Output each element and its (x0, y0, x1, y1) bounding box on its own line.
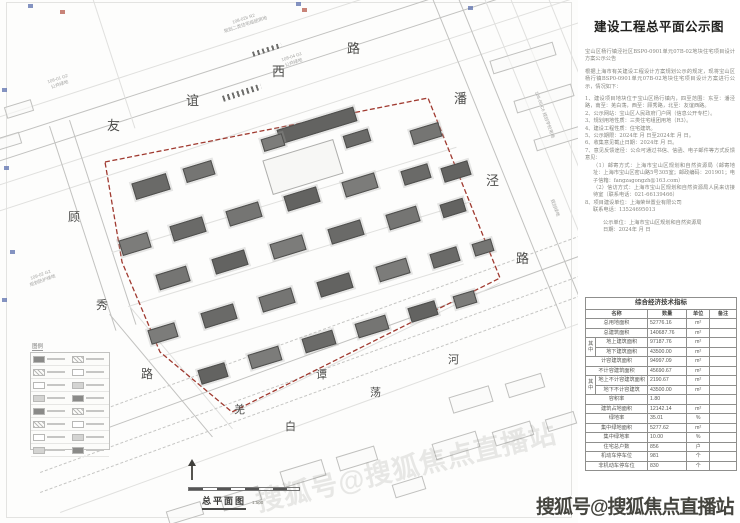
indicator-name: 总建筑面积 (586, 328, 648, 338)
legend-cell (70, 356, 109, 363)
legend-symbol (33, 356, 45, 363)
road-name-char: 谊 (186, 90, 199, 109)
group-cell: 其中 (586, 338, 596, 357)
indicator-name: 总用地面积 (586, 319, 648, 329)
notice-paragraph: 4、建设工程性质：住宅建筑。 (585, 126, 735, 133)
indicator-unit: 户 (687, 442, 710, 452)
legend-symbol (72, 434, 84, 441)
notice-paragraph: 8、项目建设单位：上海荣世置业有限公司 (585, 200, 735, 207)
legend-box (30, 352, 110, 450)
legend-symbol (33, 408, 45, 415)
legend-symbol (33, 434, 45, 441)
legend-cell (70, 382, 109, 389)
indicator-value: 1.80 (648, 395, 687, 405)
table-row: 非机动车停车位830个 (586, 461, 737, 471)
watermark: 搜狐号@搜狐焦点直播站 (536, 492, 734, 519)
indicator-unit: m² (687, 357, 710, 367)
indicator-name: 建筑占地面积 (586, 404, 648, 414)
indicator-note (710, 404, 737, 414)
road-name-char: 河 (448, 351, 459, 367)
indicator-name: 集中绿地面积 (586, 423, 648, 433)
indicator-name: 住宅总户数 (586, 442, 648, 452)
legend-text-bar (47, 397, 65, 399)
legend-cell (70, 434, 109, 441)
notice-paragraph: 日期：2024年 月 日 (585, 227, 735, 234)
indicator-name: 容积率 (586, 395, 648, 405)
annotation-stamp (2, 88, 7, 92)
indicator-unit (687, 395, 710, 405)
notice-paragraph: 根据上海市有关建设工程设计方案规划公示的规定，现将宝山区杨行镇BSP0-0901… (585, 69, 735, 91)
legend-symbol (72, 447, 84, 454)
legend-symbol (72, 421, 84, 428)
legend-cell (70, 369, 109, 376)
notice-paragraph: 1、建设项目地块位于宝山区杨行镇内，四至范围：东至：潘泾路，南至：羌白荡，西至：… (585, 96, 735, 111)
legend-text-bar (47, 358, 65, 360)
legend-cell (70, 408, 109, 415)
legend-text-bar (47, 436, 65, 438)
notice-paragraph: （2）信访方式：上海市宝山区规划和自然资源局人民来访接待室（联系电话：021-6… (585, 185, 735, 200)
legend-cell (31, 447, 70, 454)
table-row: 机动车停车位981个 (586, 452, 737, 462)
indicator-value: 5277.62 (648, 423, 687, 433)
notice-paragraph: 联系电话：13524695013 (585, 207, 735, 214)
indicator-unit: % (687, 433, 710, 443)
legend-text-bar (47, 410, 65, 412)
indicator-note (710, 452, 737, 462)
legend-cell (31, 369, 70, 376)
annotation-stamp (296, 2, 301, 6)
indicator-note (710, 319, 737, 329)
indicator-unit: m² (687, 328, 710, 338)
indicator-table: 综合经济技术指标名称数量单位备注总用地面积52776.16m²总建筑面积1406… (585, 297, 737, 471)
road-name-char: 路 (347, 38, 360, 57)
indicator-note (710, 395, 737, 405)
road-name-char: 秀 (96, 296, 108, 313)
legend-row (31, 379, 109, 392)
legend-symbol (72, 356, 84, 363)
indicator-value: 2190.67 (648, 376, 687, 386)
notice-paragraphs: 宝山区杨行镇泾社区BSP0-0901单元07B-02地块住宅项目设计方案公示公告… (585, 44, 735, 234)
road-name-char: 泾 (486, 170, 499, 189)
table-row: 其中地上不计容建筑面积2190.67m² (586, 376, 737, 386)
north-arrow-icon (191, 462, 193, 480)
legend-row (31, 353, 109, 366)
indicator-unit: m² (687, 385, 710, 395)
legend-text-bar (86, 423, 104, 425)
indicator-unit: m² (687, 366, 710, 376)
legend-text-bar (86, 358, 104, 360)
road-name-char: 荡 (370, 384, 381, 400)
indicator-value: 10.00 (648, 433, 687, 443)
indicator-note (710, 461, 737, 471)
indicator-note (710, 366, 737, 376)
indicator-value: 35.01 (648, 414, 687, 424)
legend-cell (70, 447, 109, 454)
indicator-value: 45690.67 (648, 366, 687, 376)
indicator-note (710, 385, 737, 395)
indicator-name: 不计容建筑面积 (586, 366, 648, 376)
legend-row (31, 418, 109, 431)
indicator-note (710, 347, 737, 357)
annotation-stamp (2, 298, 7, 302)
annotation-stamp (60, 10, 65, 14)
indicator-note (710, 442, 737, 452)
plan-title: 总平面图 (202, 494, 246, 510)
legend-symbol (33, 447, 45, 454)
legend-cell (70, 421, 109, 428)
road-name-char: 谭 (316, 366, 327, 382)
indicator-name: 非机动车停车位 (586, 461, 648, 471)
table-row: 总建筑面积140687.76m² (586, 328, 737, 338)
table-row: 地下不计容建筑43500.00m² (586, 385, 737, 395)
notice-paragraph: 7、意见反馈途径：公众可通过书信、信函、电子邮件等方式反馈意见： (585, 148, 735, 163)
road-name-char: 潘 (454, 88, 467, 107)
notice-paragraph: 3、规划用地性质：三类住宅组团用地（R3）。 (585, 118, 735, 125)
annotation-stamp (302, 8, 307, 12)
indicator-value: 12142.14 (648, 404, 687, 414)
table-row: 容积率1.80 (586, 395, 737, 405)
table-row: 不计容建筑面积45690.67m² (586, 366, 737, 376)
indicator-unit: m² (687, 347, 710, 357)
indicator-name: 计容建筑面积 (586, 357, 648, 367)
indicator-value: 97187.76 (648, 338, 687, 348)
indicator-name: 绿地率 (586, 414, 648, 424)
table-row: 计容建筑面积94997.09m² (586, 357, 737, 367)
annotation-stamp (10, 250, 15, 254)
table-header: 名称 (586, 309, 648, 319)
legend-symbol (72, 395, 84, 402)
notice-paragraph: 公示单位：上海市宝山区规划和自然资源局 (585, 220, 735, 227)
indicator-value: 830 (648, 461, 687, 471)
indicator-unit: m² (687, 376, 710, 386)
indicator-value: 856 (648, 442, 687, 452)
legend-cell (31, 421, 70, 428)
table-row: 集中绿地面积5277.62m² (586, 423, 737, 433)
legend-row (31, 392, 109, 405)
road-name-char: 羌 (234, 401, 245, 417)
table-row: 总用地面积52776.16m² (586, 319, 737, 329)
indicator-note (710, 328, 737, 338)
legend-symbol (72, 408, 84, 415)
legend-symbol (72, 369, 84, 376)
legend-row (31, 444, 109, 457)
road-name-char: 顾 (68, 208, 80, 225)
table-header: 单位 (687, 309, 710, 319)
indicator-note (710, 357, 737, 367)
indicator-table-wrap: 综合经济技术指标名称数量单位备注总用地面积52776.16m²总建筑面积1406… (585, 297, 737, 471)
annotation-stamp (28, 4, 33, 8)
legend-text-bar (47, 371, 65, 373)
legend-text-bar (86, 397, 104, 399)
legend-row (31, 366, 109, 379)
road-name-char: 路 (516, 248, 529, 267)
page: { "watermark": { "text": "搜狐号@搜狐焦点直播站", … (0, 0, 740, 523)
indicator-value: 52776.16 (648, 319, 687, 329)
table-row: 住宅总户数856户 (586, 442, 737, 452)
legend-cell (31, 408, 70, 415)
indicator-value: 140687.76 (648, 328, 687, 338)
indicator-note (710, 433, 737, 443)
road-name-char: 路 (141, 365, 153, 382)
indicator-value: 43500.00 (648, 347, 687, 357)
indicator-value: 94997.09 (648, 357, 687, 367)
annotation-stamp (4, 166, 9, 170)
notice-paragraph: 宝山区杨行镇泾社区BSP0-0901单元07B-02地块住宅项目设计方案公示公告 (585, 49, 735, 64)
legend-text-bar (86, 384, 104, 386)
indicator-value: 981 (648, 452, 687, 462)
legend-row (31, 431, 109, 444)
indicator-note (710, 376, 737, 386)
legend-symbol (33, 382, 45, 389)
notice-paragraph: 6、收集意见截止日期：2024年 月 日。 (585, 140, 735, 147)
road-name-char: 友 (107, 115, 120, 134)
legend-cell (31, 382, 70, 389)
legend-symbol (33, 395, 45, 402)
annotation-stamp (468, 6, 473, 10)
legend-cell (31, 395, 70, 402)
indicator-unit: 个 (687, 452, 710, 462)
indicator-name: 地下不计容建筑 (596, 385, 648, 395)
legend-symbol (72, 382, 84, 389)
indicator-value: 43500.00 (648, 385, 687, 395)
legend-title: 图例 (32, 342, 43, 351)
indicator-unit: % (687, 414, 710, 424)
indicator-note (710, 338, 737, 348)
table-header: 备注 (710, 309, 737, 319)
indicator-name: 地下建筑面积 (596, 347, 648, 357)
legend-symbol (33, 421, 45, 428)
legend-cell (70, 395, 109, 402)
indicator-name: 地上建筑面积 (596, 338, 648, 348)
indicator-unit: m² (687, 338, 710, 348)
notice-paragraph: （1）邮寄方式：上海市宝山区规划和自然资源局（邮寄地址：上海市宝山区密山路5号3… (585, 163, 735, 185)
indicator-note (710, 414, 737, 424)
legend-text-bar (86, 371, 104, 373)
table-row: 建筑占地面积12142.14m² (586, 404, 737, 414)
legend-symbol (33, 369, 45, 376)
legend-text-bar (47, 423, 65, 425)
indicator-unit: m² (687, 319, 710, 329)
table-row: 其中地上建筑面积97187.76m² (586, 338, 737, 348)
indicator-unit: m² (687, 423, 710, 433)
legend-cell (31, 434, 70, 441)
legend-text-bar (86, 410, 104, 412)
legend-text-bar (86, 449, 104, 451)
legend-text-bar (47, 449, 65, 451)
road-name-char: 白 (285, 418, 296, 434)
indicator-name: 地上不计容建筑面积 (596, 376, 648, 386)
indicator-note (710, 423, 737, 433)
legend-text-bar (47, 384, 65, 386)
legend-text-bar (86, 436, 104, 438)
indicator-name: 机动车停车位 (586, 452, 648, 462)
indicator-unit: 个 (687, 461, 710, 471)
table-row: 地下建筑面积43500.00m² (586, 347, 737, 357)
legend-row (31, 405, 109, 418)
table-header: 数量 (648, 309, 687, 319)
table-row: 集中绿地率10.00% (586, 433, 737, 443)
table-row: 绿地率35.01% (586, 414, 737, 424)
table-title: 综合经济技术指标 (586, 298, 737, 310)
indicator-unit: m² (687, 404, 710, 414)
legend-cell (31, 356, 70, 363)
group-cell: 其中 (586, 376, 596, 395)
indicator-name: 集中绿地率 (586, 433, 648, 443)
notice-title: 建设工程总平面公示图 (580, 16, 738, 35)
